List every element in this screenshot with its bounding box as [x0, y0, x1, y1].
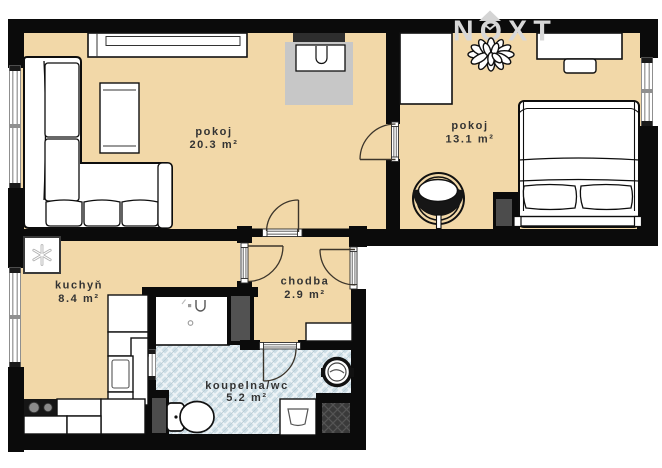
svg-text:13.1 m²: 13.1 m² — [445, 134, 494, 146]
svg-text:5.2 m²: 5.2 m² — [226, 392, 267, 404]
svg-text:kuchyň: kuchyň — [55, 280, 103, 292]
svg-text:pokoj: pokoj — [195, 126, 232, 138]
svg-text:20.3 m²: 20.3 m² — [189, 139, 238, 151]
svg-text:koupelna/wc: koupelna/wc — [205, 380, 289, 392]
svg-text:chodba: chodba — [281, 276, 330, 288]
svg-text:pokoj: pokoj — [451, 120, 488, 132]
svg-text:NOXT: NOXT — [453, 16, 557, 48]
svg-text:8.4 m²: 8.4 m² — [58, 293, 99, 305]
svg-text:2.9 m²: 2.9 m² — [284, 289, 325, 301]
